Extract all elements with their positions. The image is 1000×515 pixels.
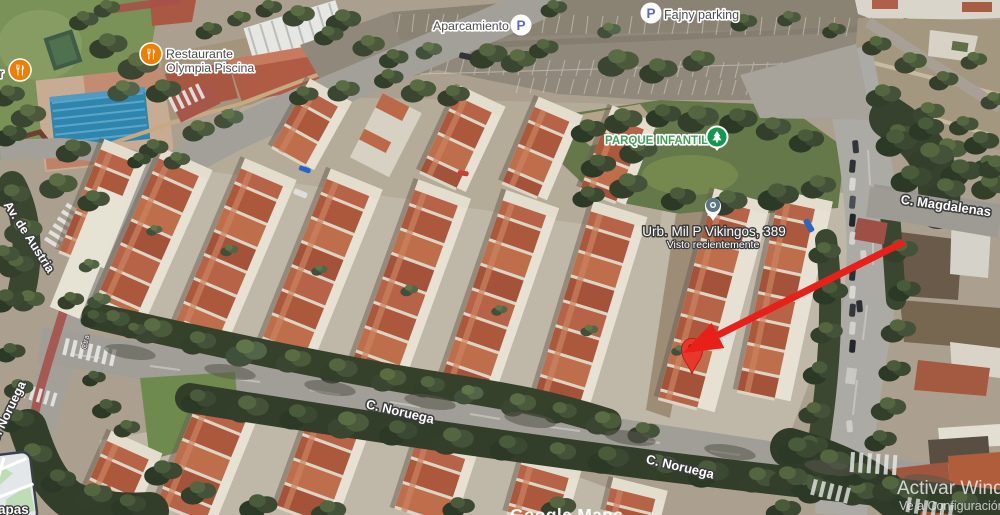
svg-text:Activar Window: Activar Window bbox=[897, 478, 1000, 499]
svg-text:apas: apas bbox=[0, 502, 29, 515]
svg-text:P: P bbox=[516, 18, 525, 33]
svg-text:Ve a Configuración d: Ve a Configuración d bbox=[899, 499, 1000, 513]
svg-text:Fajny parking: Fajny parking bbox=[664, 8, 739, 22]
svg-text:Aparcamiento: Aparcamiento bbox=[433, 19, 509, 33]
svg-text:Urb. Mil P Vikingos, 389: Urb. Mil P Vikingos, 389 bbox=[642, 224, 786, 239]
svg-text:Olympia Piscina: Olympia Piscina bbox=[166, 61, 254, 75]
svg-text:Visto recientemente: Visto recientemente bbox=[667, 239, 760, 251]
svg-text:Restaurante: Restaurante bbox=[166, 47, 233, 61]
svg-text:PARQUE INFANTIL: PARQUE INFANTIL bbox=[605, 135, 708, 147]
svg-text:P: P bbox=[646, 6, 655, 21]
svg-text:Google Maps: Google Maps bbox=[510, 505, 623, 515]
